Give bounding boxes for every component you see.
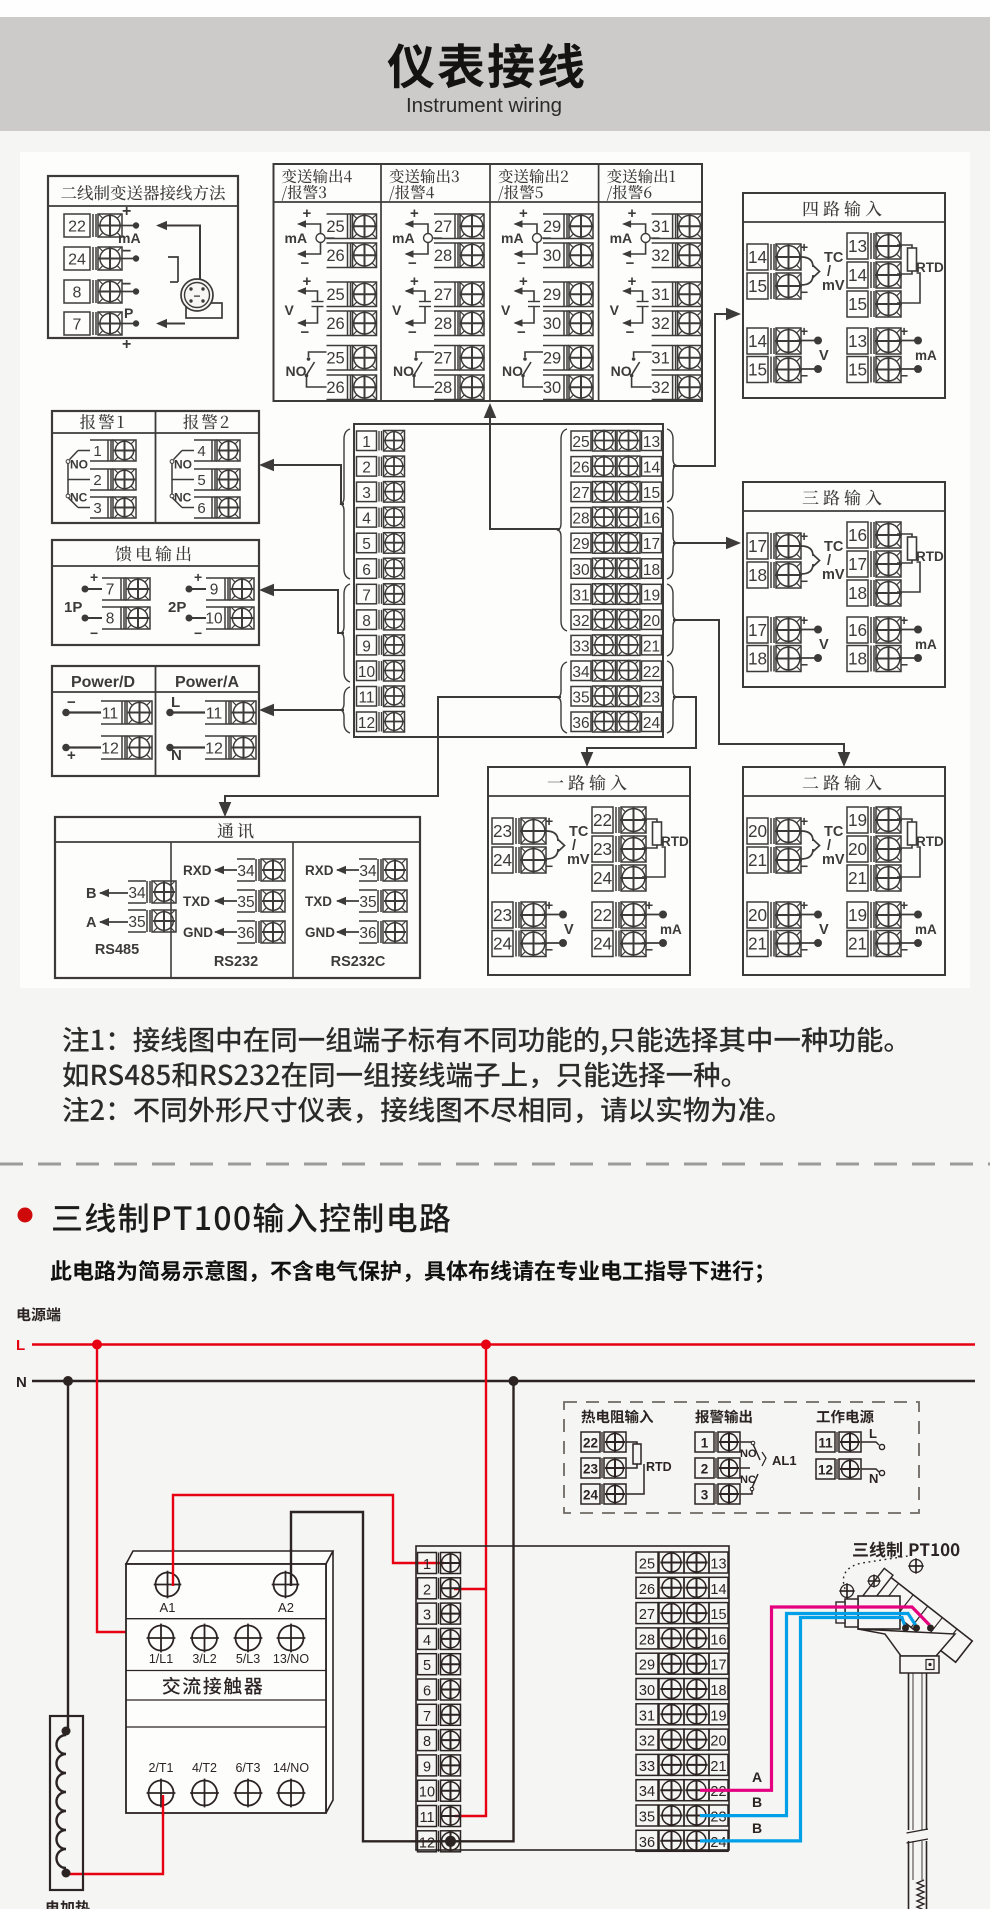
svg-text:28: 28 [572,511,589,528]
svg-text:34: 34 [237,863,255,880]
svg-text:25: 25 [639,1557,655,1573]
svg-text:21: 21 [748,850,767,870]
svg-text:+: + [645,897,653,913]
svg-text:31: 31 [639,1708,655,1724]
svg-text:23: 23 [593,839,612,859]
svg-text:5: 5 [197,472,205,489]
svg-text:+: + [410,273,419,290]
svg-text:−: − [800,942,808,958]
svg-text:27: 27 [572,485,589,502]
svg-text:A: A [86,915,97,931]
svg-text:+: + [545,813,553,829]
svg-text:−: − [301,324,310,341]
svg-text:4: 4 [197,443,205,460]
svg-text:V: V [610,302,620,318]
svg-text:−: − [517,255,526,272]
svg-text:−: − [900,942,908,958]
svg-text:2: 2 [423,1582,431,1598]
svg-text:10: 10 [419,1785,435,1801]
svg-text:mA: mA [915,348,937,363]
svg-text:25: 25 [326,218,344,236]
svg-text:25: 25 [572,434,589,451]
svg-text:2: 2 [701,1462,709,1477]
svg-text:22: 22 [68,218,86,235]
svg-text:20: 20 [848,839,867,859]
svg-text:−: − [90,625,98,641]
svg-text:mA: mA [610,230,633,246]
svg-text:−: − [194,625,202,641]
svg-text:AL1: AL1 [772,1453,797,1468]
svg-text:13: 13 [848,331,867,351]
svg-text:TXD: TXD [183,894,210,909]
svg-text:19: 19 [710,1708,726,1724]
svg-text:22: 22 [583,1436,598,1451]
svg-text:15: 15 [848,360,867,380]
svg-text:24: 24 [493,850,513,870]
svg-text:25: 25 [326,286,344,304]
svg-text:22: 22 [593,810,612,830]
svg-text:+: + [800,528,808,544]
svg-text:mA: mA [915,637,937,652]
svg-text:18: 18 [848,583,867,603]
svg-text:NO: NO [393,363,414,379]
svg-text:14: 14 [848,265,868,285]
svg-text:3: 3 [93,500,101,517]
svg-text:+: + [628,205,637,222]
svg-text:24: 24 [493,934,513,954]
svg-text:mA: mA [915,922,937,937]
svg-text:12: 12 [101,740,119,757]
svg-text:−: − [122,276,131,293]
svg-text:5: 5 [423,1658,431,1674]
svg-text:V: V [819,637,829,653]
svg-text:−: − [626,324,635,341]
svg-text:14: 14 [748,331,768,351]
svg-text:+: + [900,323,908,339]
svg-text:35: 35 [359,894,376,911]
svg-text:B: B [752,1794,762,1810]
svg-text:3: 3 [701,1488,709,1503]
svg-text:NC: NC [70,491,88,505]
svg-text:12: 12 [358,715,375,732]
svg-text:32: 32 [651,315,669,333]
svg-text:N: N [869,1471,878,1486]
svg-text:6/T3: 6/T3 [235,1761,260,1775]
svg-text:15: 15 [848,294,867,314]
svg-text:12: 12 [205,740,223,757]
svg-text:21: 21 [710,1759,726,1775]
svg-text:35: 35 [572,690,589,707]
svg-text:NO: NO [611,363,632,379]
svg-text:V: V [819,348,829,364]
svg-text:1P: 1P [64,599,82,616]
svg-text:29: 29 [543,350,561,368]
svg-text:+: + [194,569,202,585]
svg-text:17: 17 [748,536,767,556]
svg-text:Instrument wiring: Instrument wiring [406,94,562,117]
svg-text:15: 15 [643,485,660,502]
svg-text:9: 9 [210,582,219,599]
svg-text:34: 34 [359,863,377,880]
svg-text:24: 24 [643,715,661,732]
svg-text:7: 7 [106,582,115,599]
svg-text:+: + [519,205,528,222]
svg-text:3/L2: 3/L2 [192,1652,216,1666]
svg-text:V: V [564,922,574,938]
svg-text:+: + [900,897,908,913]
svg-text:14: 14 [748,247,768,267]
svg-text:22: 22 [643,664,660,681]
svg-text:27: 27 [434,286,452,304]
svg-text:−: − [645,942,653,958]
svg-text:14: 14 [710,1582,726,1598]
svg-text:mA: mA [660,922,682,937]
svg-text:mA: mA [501,230,524,246]
svg-text:−: − [545,942,553,958]
svg-text:NC: NC [174,491,192,505]
svg-text:NO: NO [740,1448,757,1460]
svg-text:−: − [800,858,808,874]
svg-text:22: 22 [710,1784,726,1800]
svg-text:mV: mV [567,852,590,868]
svg-text:15: 15 [748,276,767,296]
svg-text:20: 20 [748,821,767,841]
svg-text:13: 13 [848,236,867,256]
svg-text:16: 16 [848,620,867,640]
svg-text:30: 30 [572,562,590,579]
svg-text:−: − [193,289,200,303]
svg-text:36: 36 [572,715,589,732]
svg-text:+: + [800,897,808,913]
svg-text:26: 26 [639,1582,655,1598]
svg-text:GND: GND [305,925,335,940]
svg-text:4: 4 [362,511,371,528]
svg-text:34: 34 [128,885,146,902]
svg-text:mV: mV [822,567,845,583]
svg-text:24: 24 [593,868,613,888]
svg-text:P: P [124,305,133,321]
svg-text:26: 26 [326,379,344,397]
svg-text:24: 24 [68,251,86,268]
svg-text:+: + [628,273,637,290]
svg-text:7: 7 [362,587,371,604]
svg-text:11: 11 [102,705,119,722]
svg-text:18: 18 [710,1683,726,1699]
svg-text:31: 31 [572,587,589,604]
svg-text:21: 21 [848,868,867,888]
svg-text:34: 34 [572,664,590,681]
svg-text:L: L [869,1426,877,1441]
svg-text:L: L [16,1337,25,1354]
svg-text:13/NO: 13/NO [273,1652,309,1666]
svg-text:8: 8 [106,611,115,628]
svg-text:21: 21 [748,934,767,954]
svg-text:6: 6 [197,500,205,517]
svg-text:32: 32 [651,247,669,265]
svg-text:GND: GND [183,925,213,940]
svg-text:A: A [752,1769,762,1785]
svg-text:8: 8 [73,284,82,301]
svg-text:6: 6 [362,562,371,579]
svg-text:−: − [800,573,808,589]
svg-text:−: − [67,694,76,711]
svg-text:2: 2 [362,460,371,477]
svg-text:2: 2 [93,472,101,489]
svg-text:19: 19 [643,587,660,604]
svg-text:8: 8 [423,1734,431,1750]
svg-text:+: + [519,273,528,290]
svg-text:V: V [285,302,295,318]
svg-text:17: 17 [748,620,767,640]
svg-text:18: 18 [848,649,867,669]
svg-text:20: 20 [710,1734,726,1750]
svg-text:5: 5 [362,536,371,553]
svg-text:TXD: TXD [305,894,332,909]
svg-text:21: 21 [643,638,660,655]
svg-text:29: 29 [543,218,561,236]
svg-text:35: 35 [639,1810,655,1826]
svg-text:36: 36 [359,925,376,942]
svg-text:35: 35 [237,894,254,911]
svg-text:29: 29 [543,286,561,304]
svg-text:29: 29 [639,1658,655,1674]
svg-text:9: 9 [362,638,371,655]
svg-text:23: 23 [583,1462,599,1477]
svg-text:4: 4 [423,1633,431,1649]
svg-text:7: 7 [73,316,82,333]
svg-text:+: + [800,813,808,829]
svg-text:−: − [800,657,808,673]
svg-text:1/L1: 1/L1 [149,1652,173,1666]
svg-text:25: 25 [326,350,344,368]
svg-text:+: + [90,569,98,585]
svg-text:V: V [819,922,829,938]
svg-text:24: 24 [710,1835,726,1851]
svg-text:28: 28 [639,1632,655,1648]
svg-text:36: 36 [237,925,254,942]
svg-text:30: 30 [639,1683,655,1699]
svg-text:N: N [16,1374,27,1391]
svg-text:NO: NO [174,458,192,472]
svg-text:A2: A2 [278,1600,294,1615]
svg-text:16: 16 [848,525,867,545]
svg-text:30: 30 [543,379,561,397]
svg-text:−: − [408,255,417,272]
svg-text:+: + [900,612,908,628]
svg-text:15: 15 [710,1607,726,1623]
svg-text:26: 26 [572,460,589,477]
svg-text:27: 27 [434,218,452,236]
svg-text:26: 26 [326,247,344,265]
svg-text:4/T2: 4/T2 [192,1761,217,1775]
svg-text:−: − [900,657,908,673]
svg-text:17: 17 [848,554,867,574]
svg-text:31: 31 [651,350,669,368]
svg-text:V: V [392,302,402,318]
svg-text:14/NO: 14/NO [273,1761,309,1775]
svg-text:10: 10 [358,664,376,681]
svg-text:1: 1 [93,443,101,460]
svg-text:24: 24 [583,1488,599,1503]
svg-text:28: 28 [434,247,452,265]
svg-text:−: − [408,324,417,341]
svg-text:8: 8 [362,613,371,630]
svg-text:mA: mA [285,230,308,246]
svg-text:+: + [122,336,131,353]
svg-text:23: 23 [643,690,660,707]
svg-text:3: 3 [423,1608,431,1624]
svg-text:RS232C: RS232C [331,954,386,970]
svg-text:24: 24 [593,934,613,954]
svg-text:A1: A1 [160,1600,176,1615]
svg-text:13: 13 [710,1557,726,1573]
svg-text:29: 29 [572,536,589,553]
svg-text:13: 13 [643,434,660,451]
svg-text:NO: NO [286,363,307,379]
svg-text:20: 20 [748,905,767,925]
svg-text:9: 9 [423,1759,431,1775]
svg-text:11: 11 [358,690,374,707]
svg-text:19: 19 [848,905,867,925]
svg-text:+: + [800,612,808,628]
svg-text:6: 6 [423,1684,431,1700]
svg-text:12: 12 [818,1463,833,1478]
svg-text:11: 11 [419,1810,434,1826]
svg-text:16: 16 [643,511,660,528]
svg-text:23: 23 [710,1810,726,1826]
svg-text:32: 32 [651,379,669,397]
svg-text:1: 1 [362,434,371,451]
svg-text:RS232: RS232 [214,954,258,970]
svg-text:−: − [626,255,635,272]
svg-text:B: B [86,886,96,902]
svg-text:23: 23 [493,821,512,841]
svg-text:−: − [122,243,131,260]
svg-text:Power/D: Power/D [71,674,135,691]
svg-text:12: 12 [419,1835,435,1851]
svg-text:32: 32 [639,1734,655,1750]
svg-text:16: 16 [710,1632,726,1648]
svg-text:18: 18 [643,562,660,579]
svg-text:15: 15 [748,360,767,380]
svg-text:18: 18 [748,649,767,669]
svg-text:21: 21 [848,934,867,954]
svg-text:22: 22 [593,905,612,925]
svg-text:30: 30 [543,247,561,265]
svg-text:+: + [122,203,131,220]
svg-text:+: + [303,273,312,290]
svg-text:17: 17 [710,1658,726,1674]
svg-text:NO: NO [70,458,88,472]
svg-text:2P: 2P [168,599,186,616]
svg-text:−: − [545,858,553,874]
svg-text:23: 23 [493,905,512,925]
svg-text:18: 18 [748,565,767,585]
svg-text:28: 28 [434,315,452,333]
svg-text:10: 10 [205,611,223,628]
svg-text:RXD: RXD [305,863,334,878]
svg-text:26: 26 [326,315,344,333]
svg-text:36: 36 [639,1835,655,1851]
svg-text:mA: mA [392,230,415,246]
svg-text:L: L [171,694,180,711]
svg-text:27: 27 [434,350,452,368]
svg-text:+: + [303,205,312,222]
svg-text:NC: NC [740,1474,756,1486]
svg-text:17: 17 [643,536,660,553]
svg-text:34: 34 [639,1784,655,1800]
svg-text:1: 1 [701,1436,709,1451]
svg-text:Power/A: Power/A [175,674,239,691]
svg-text:31: 31 [651,286,669,304]
svg-text:mV: mV [822,278,845,294]
svg-text:14: 14 [643,460,661,477]
svg-text:2/T1: 2/T1 [148,1761,173,1775]
svg-text:+: + [800,239,808,255]
svg-text:−: − [301,255,310,272]
svg-text:RS485: RS485 [95,942,139,958]
svg-text:35: 35 [128,914,145,931]
svg-text:30: 30 [543,315,561,333]
svg-text:+: + [410,205,419,222]
svg-text:−: − [517,324,526,341]
svg-text:32: 32 [572,613,589,630]
svg-text:27: 27 [639,1607,655,1623]
svg-text:−: − [800,284,808,300]
svg-text:NO: NO [502,363,523,379]
svg-text:+: + [545,897,553,913]
svg-text:28: 28 [434,379,452,397]
svg-text:V: V [501,302,511,318]
svg-text:19: 19 [848,810,867,830]
svg-text:7: 7 [423,1709,431,1725]
svg-text:RXD: RXD [183,863,212,878]
svg-text:B: B [752,1820,762,1836]
svg-text:mV: mV [822,852,845,868]
svg-text:1: 1 [423,1557,431,1573]
svg-text:3: 3 [362,485,371,502]
svg-text:31: 31 [651,218,669,236]
svg-text:RTD: RTD [646,1460,672,1474]
svg-text:11: 11 [818,1436,833,1451]
svg-text:33: 33 [572,638,589,655]
svg-text:11: 11 [206,705,223,722]
svg-text:+: + [800,323,808,339]
svg-text:20: 20 [643,613,661,630]
svg-text:33: 33 [639,1759,655,1775]
svg-text:5/L3: 5/L3 [236,1652,260,1666]
